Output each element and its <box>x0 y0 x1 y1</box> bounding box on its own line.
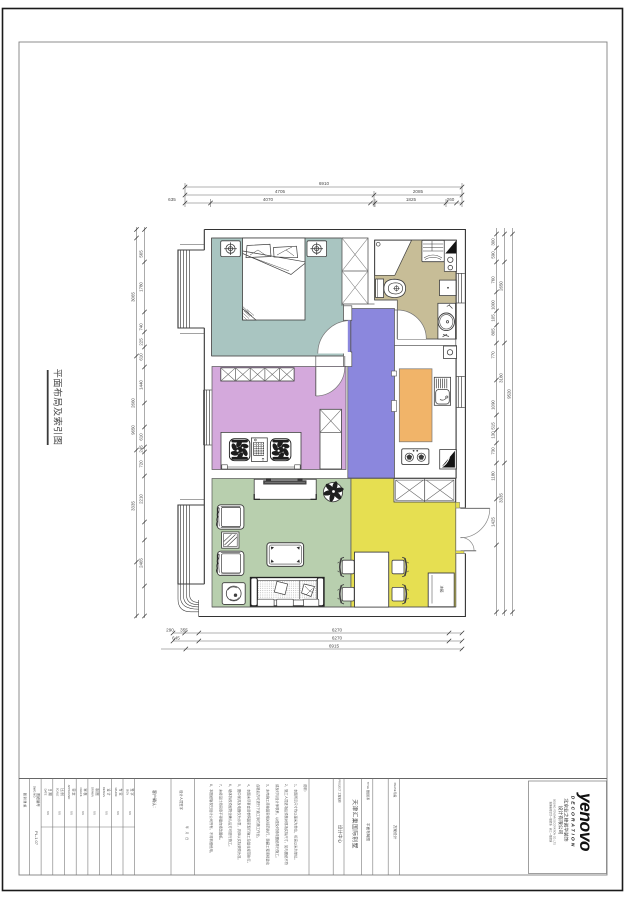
svg-text:设计有限公司: 设计有限公司 <box>557 806 564 835</box>
svg-text:6910: 6910 <box>319 181 330 186</box>
svg-text:6915: 6915 <box>329 643 340 648</box>
svg-text:720: 720 <box>139 460 144 468</box>
svg-text:客户确认：: 客户确认： <box>152 790 158 810</box>
svg-text:PL-1 07: PL-1 07 <box>34 831 39 846</box>
svg-text:2、施工人员进场后须核对现场实际尺寸，如与图纸不符: 2、施工人员进场后须核对现场实际尺寸，如与图纸不符 <box>284 784 289 866</box>
svg-text:130: 130 <box>491 431 496 439</box>
svg-text:740: 740 <box>139 323 144 331</box>
svg-text:300: 300 <box>491 238 496 246</box>
svg-text:4、本图未尽事宜请参照国家现行施工及验收规范执行。: 4、本图未尽事宜请参照国家现行施工及验收规范执行。 <box>247 784 252 865</box>
svg-text:9520: 9520 <box>507 389 512 399</box>
svg-text:XX: XX <box>81 811 85 815</box>
svg-text:DRAWN: DRAWN <box>91 787 95 797</box>
svg-text:5、图中家具及电器仅为示意，具体以实际采购为准。: 5、图中家具及电器仅为示意，具体以实际采购为准。 <box>237 784 242 862</box>
svg-text:合格后方可进行下道工序的施工作业。: 合格后方可进行下道工序的施工作业。 <box>256 784 261 840</box>
svg-text:3180: 3180 <box>499 373 504 383</box>
svg-text:2650: 2650 <box>499 281 504 291</box>
svg-text:1000: 1000 <box>491 300 496 310</box>
svg-text:XX: XX <box>58 811 62 815</box>
svg-text:6270: 6270 <box>332 635 343 640</box>
svg-text:TITLE 图纸名称: TITLE 图纸名称 <box>366 782 370 801</box>
svg-text:冰箱: 冰箱 <box>440 586 445 593</box>
svg-text:730: 730 <box>491 447 496 455</box>
svg-text:610: 610 <box>139 433 144 441</box>
svg-text:245: 245 <box>139 445 144 453</box>
svg-text:XX: XX <box>128 811 132 815</box>
svg-text:北京业之峰诺华装饰: 北京业之峰诺华装饰 <box>563 798 570 841</box>
svg-text:635: 635 <box>168 197 176 202</box>
svg-text:1180: 1180 <box>491 471 496 481</box>
svg-text:图纸编号: 图纸编号 <box>36 793 41 807</box>
svg-text:3、水电施工须按国家相关规范执行，隐蔽工程须经验收: 3、水电施工须按国家相关规范执行，隐蔽工程须经验收 <box>265 784 270 866</box>
svg-text:3335: 3335 <box>131 501 136 511</box>
svg-text:1780: 1780 <box>139 282 144 292</box>
svg-text:平面布局图: 平面布局图 <box>366 823 371 841</box>
svg-text:请及时与设计师联系，以便及时修改图纸再行施工。: 请及时与设计师联系，以便及时修改图纸再行施工。 <box>275 784 280 860</box>
svg-text:yenovo: yenovo <box>576 792 596 852</box>
svg-text:565: 565 <box>139 250 144 258</box>
svg-text:DESIGN: DESIGN <box>102 787 106 797</box>
svg-text:MAJOR: MAJOR <box>114 787 118 796</box>
svg-text:DECORATION: DECORATION <box>570 796 576 849</box>
svg-text:PROJECT 工程名称: PROJECT 工程名称 <box>338 779 342 803</box>
svg-text:805: 805 <box>491 328 496 336</box>
svg-text:日 期: 日 期 <box>48 788 53 795</box>
svg-text:4070: 4070 <box>263 197 274 202</box>
svg-text:比 例: 比 例 <box>60 788 65 795</box>
svg-text:SCALE: SCALE <box>55 788 59 797</box>
svg-text:4705: 4705 <box>275 189 286 194</box>
svg-text:290: 290 <box>166 627 174 632</box>
svg-text:方案设计: 方案设计 <box>393 825 398 840</box>
svg-text:专 业: 专 业 <box>118 788 123 795</box>
svg-text:6270: 6270 <box>332 627 343 632</box>
svg-text:PHASE 阶段: PHASE 阶段 <box>393 783 397 798</box>
svg-text:CHECK: CHECK <box>79 787 83 796</box>
svg-text:装饰装修设计一级资质 施工一级资质: 装饰装修设计一级资质 施工一级资质 <box>549 802 553 843</box>
svg-text:签 字: 签 字 <box>130 788 135 795</box>
svg-text:天津汇巢国际别墅: 天津汇巢国际别墅 <box>351 799 359 849</box>
svg-text:说明：: 说明： <box>303 784 308 794</box>
svg-text:2210: 2210 <box>139 494 144 504</box>
svg-text:制 图: 制 图 <box>95 788 100 795</box>
svg-text:XX: XX <box>93 811 97 815</box>
svg-text:XX: XX <box>116 811 120 815</box>
svg-text:6、墙体拆改须经物业确认后方可进行施工。: 6、墙体拆改须经物业确认后方可进行施工。 <box>228 784 233 848</box>
svg-text:SIGN: SIGN <box>126 789 130 795</box>
svg-text:590: 590 <box>491 251 496 259</box>
svg-text:平面布局及索引图: 平面布局及索引图 <box>53 369 64 446</box>
svg-text:APPROVED: APPROVED <box>67 785 71 800</box>
svg-text:645: 645 <box>172 635 180 640</box>
svg-text:2660: 2660 <box>131 398 136 408</box>
svg-text:8、本图纸版权归设计公司所有，不得转借他用。: 8、本图纸版权归设计公司所有，不得转借他用。 <box>209 784 214 855</box>
svg-text:225: 225 <box>139 338 144 346</box>
svg-text:610: 610 <box>139 353 144 361</box>
svg-text:1090: 1090 <box>491 400 496 410</box>
svg-text:设 计: 设 计 <box>107 788 112 796</box>
svg-text:1425: 1425 <box>491 517 496 527</box>
svg-text:XX: XX <box>104 811 108 815</box>
svg-text:3335: 3335 <box>499 493 504 503</box>
svg-text:审 核: 审 核 <box>83 788 88 796</box>
svg-text:审 定: 审 定 <box>72 788 77 796</box>
svg-text:2465: 2465 <box>139 558 144 568</box>
svg-text:XX: XX <box>46 811 50 815</box>
svg-text:105: 105 <box>491 314 496 322</box>
svg-text:设计人员签字: 设计人员签字 <box>179 790 184 810</box>
svg-text:1440: 1440 <box>139 380 144 390</box>
svg-text:355: 355 <box>180 627 188 632</box>
svg-text:515: 515 <box>491 422 496 430</box>
svg-text:260: 260 <box>447 197 455 202</box>
svg-text:3065: 3065 <box>131 292 136 302</box>
svg-text:图 别 建 施: 图 别 建 施 <box>23 793 28 808</box>
svg-text:9650: 9650 <box>131 425 136 435</box>
svg-text:770: 770 <box>491 351 496 359</box>
svg-text:1、本图所示尺寸均以毫米为单位，标高以米为单位。: 1、本图所示尺寸均以毫米为单位，标高以米为单位。 <box>294 784 299 862</box>
svg-text:760: 760 <box>491 276 496 284</box>
svg-text:1825: 1825 <box>406 197 417 202</box>
svg-text:DATE: DATE <box>44 789 48 796</box>
svg-text:2085: 2085 <box>413 189 424 194</box>
svg-text:年 月 日: 年 月 日 <box>185 826 189 840</box>
svg-text:7、未经设计师同意不得擅自修改图纸。: 7、未经设计师同意不得擅自修改图纸。 <box>218 784 223 842</box>
svg-text:XX: XX <box>69 811 73 815</box>
svg-text:设计中心: 设计中心 <box>337 825 344 844</box>
